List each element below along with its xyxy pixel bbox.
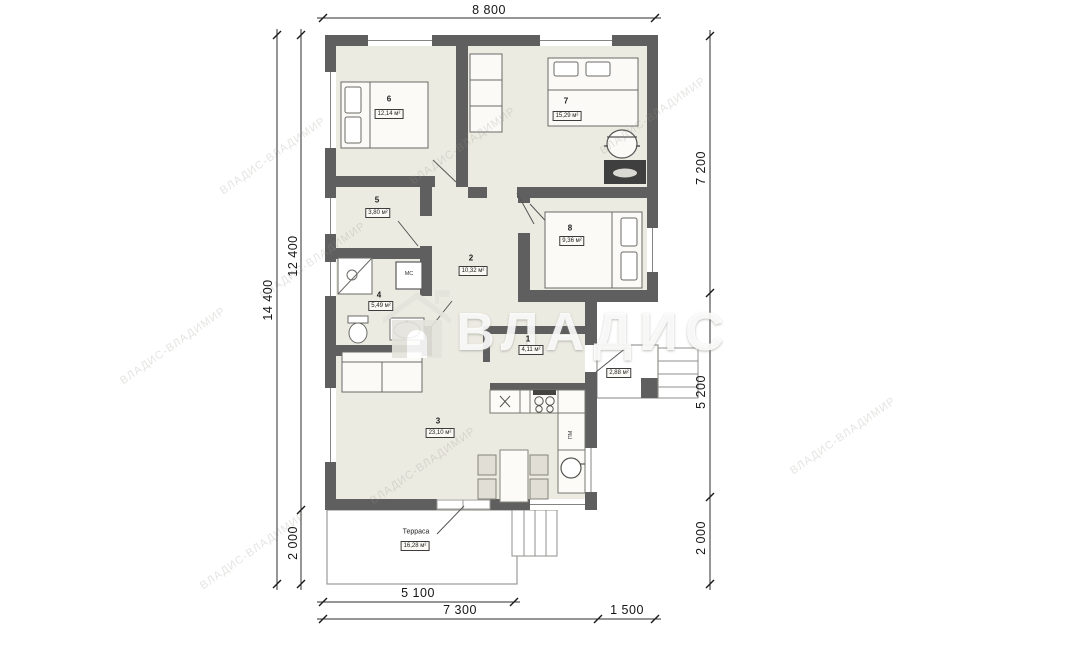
dim-bottom-terrace: 5 100	[401, 586, 435, 600]
bed-room8	[545, 212, 642, 288]
dim-left-inner: 12 400	[286, 235, 300, 276]
terrace-area: 16,28 м²	[401, 541, 430, 551]
dim-bottom-porch: 1 500	[610, 603, 644, 617]
floor-plan-canvas: ВЛАДИС-ВЛАДИМИР ВЛАДИС-ВЛАДИМИР ВЛАДИС-В…	[0, 0, 1080, 651]
room1-area: 4,11 м²	[518, 345, 543, 355]
toilet	[348, 316, 368, 343]
room6-number: 6	[387, 95, 391, 104]
room3-number: 3	[436, 417, 440, 426]
brand-watermark: ВЛАДИС	[456, 301, 731, 363]
room8-number: 8	[568, 224, 572, 233]
dim-right-middle: 5 200	[694, 375, 708, 409]
dim-bottom-main: 7 300	[443, 603, 477, 617]
terrace-steps	[512, 510, 557, 556]
room4-number: 4	[377, 291, 381, 300]
brand-house-logo-icon	[378, 288, 456, 360]
room4-area: 5,49 м²	[368, 301, 393, 311]
room5-number: 5	[375, 196, 379, 205]
dishwasher-label: ПМ	[568, 431, 574, 440]
porch-area: 2,88 м²	[606, 368, 631, 378]
room3-area: 23,10 м²	[426, 428, 455, 438]
dim-right-bottom: 2 000	[694, 521, 708, 555]
terrace-name: Терраса	[403, 529, 430, 536]
room8-area: 9,36 м²	[559, 236, 584, 246]
washing-machine-label: МС	[405, 271, 414, 277]
room5-area: 3,80 м²	[365, 208, 390, 218]
room7-area: 15,29 м²	[553, 111, 582, 121]
dim-right-top: 7 200	[694, 151, 708, 185]
room7-number: 7	[564, 97, 568, 106]
dim-left-bottom: 2 000	[286, 526, 300, 560]
room2-number: 2	[469, 254, 473, 263]
shower	[338, 258, 372, 294]
room6-area: 12,14 м²	[375, 109, 404, 119]
room2-area: 10,32 м²	[459, 266, 488, 276]
dim-top: 8 800	[472, 3, 506, 17]
room1-number: 1	[526, 335, 530, 344]
dim-left-outer: 14 400	[261, 279, 275, 320]
